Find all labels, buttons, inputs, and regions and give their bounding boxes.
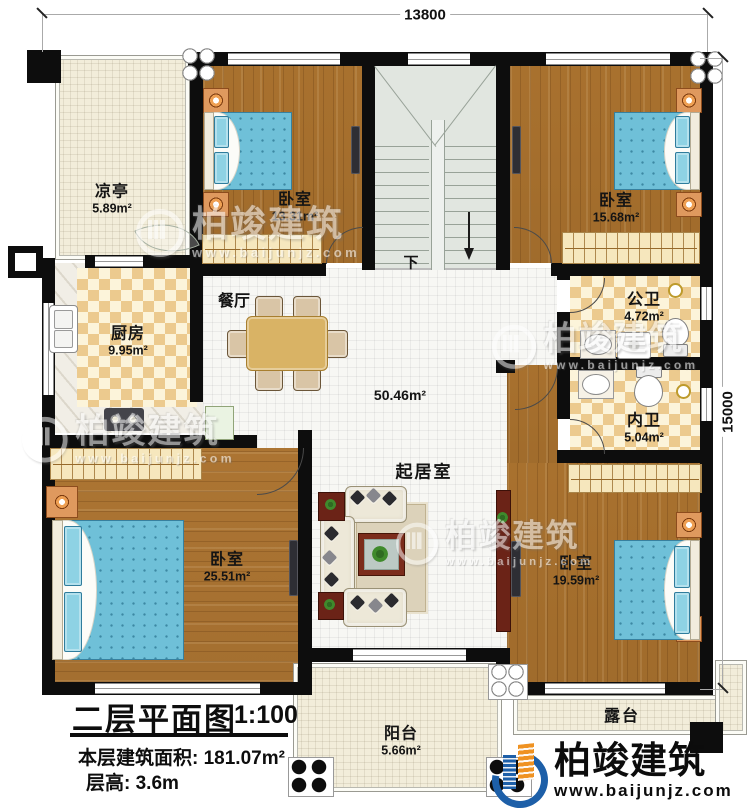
nightstand-lamp-icon [676,512,702,538]
wall-bedroom-tl-bottom [190,263,326,276]
wall-bedroom-bl-top-b [303,435,312,448]
plant-icon [324,599,335,610]
dimension-right-value: 15000 [720,387,737,437]
room-name: 厨房 [108,326,148,344]
headboard [52,520,63,660]
headboard [690,540,700,640]
bed-bedroom-bl [52,518,184,660]
dimension-ext [700,689,722,690]
pillow [214,116,229,148]
dimension-ext [707,14,708,52]
sink-basin [54,330,73,348]
shower-icon [668,283,683,298]
dimension-tick [702,7,713,18]
bed-bedroom-tl [204,110,292,190]
dimension-line-top [42,14,708,15]
stove-icon [104,408,144,431]
headboard [690,112,700,190]
window-stair [408,53,470,65]
room-label-private-bath: 内卫 5.04m² [624,413,664,446]
column-top-left [27,50,61,83]
room-label-pavilion: 凉亭 5.89m² [92,184,132,217]
column-circles-icon [489,663,526,698]
dining-chair [255,368,283,391]
living-area-value: 50.46m² [374,387,426,403]
public-bath-toilet-tank [663,344,688,357]
balcony-columns-icon [288,757,332,795]
logo-building-orange [518,743,534,781]
nightstand-lamp-icon [46,486,78,518]
room-area: 13.31m² [272,210,319,224]
wall-hall-stub [496,360,515,373]
plant-icon [372,546,388,562]
room-name: 内卫 [624,413,664,431]
stair-down-label: 下 [403,252,418,273]
room-area: 25.51m² [204,570,251,584]
pillow [674,592,690,634]
wall-kitchen-right [190,52,203,402]
plant-icon [325,499,336,510]
shower-icon [676,384,691,399]
public-bath-counter [617,332,651,359]
wall-stair-right [496,52,510,270]
wardrobe-bedroom-br [568,464,702,493]
room-area: 19.59m² [553,574,600,588]
room-label-public-bath: 公卫 4.72m² [624,292,664,325]
pillow [64,526,82,586]
room-label-dining: 餐厅 [218,287,250,311]
kitchen-sink-icon [49,305,78,353]
wall-right [700,52,713,695]
stair-down-arrow [464,248,474,260]
wardrobe-bedroom-tl [202,234,322,264]
room-name: 凉亭 [92,184,132,202]
nightstand-lamp-icon [676,192,702,217]
room-name: 阳台 [381,726,421,744]
plant-icon [497,512,508,523]
private-bath-sink-icon [578,370,614,399]
room-label-terrace: 露台 [604,702,640,726]
brand-website: www.baijunjz.com [554,781,733,801]
room-label-bedroom-br: 卧室 19.59m² [553,556,600,589]
window-bedroom-br [545,683,665,694]
room-area: 5.66m² [381,744,421,758]
dimension-ext [42,14,43,52]
room-name: 卧室 [272,192,319,210]
public-bath-sink-icon [580,330,616,359]
brand-logo: 柏竣建筑 www.baijunjz.com [492,742,733,801]
tv-icon [511,541,521,597]
dimension-top-value: 13800 [400,7,450,24]
floor-height-line: 层高: 3.6m [86,768,179,795]
window-private-bath [701,388,712,421]
title-underline [70,733,288,737]
stair-steps-left [375,146,429,270]
window-public-bath [701,287,712,320]
room-area: 5.04m² [624,431,664,445]
room-name: 卧室 [204,552,251,570]
dimension-line-right [722,58,723,690]
tv-icon [351,126,360,174]
planter-box [8,246,43,278]
headboard [204,112,214,190]
tv-icon [512,126,521,174]
room-label-bedroom-tr: 卧室 15.68m² [593,193,640,226]
room-label-balcony: 阳台 5.66m² [381,726,421,759]
room-area: 5.89m² [92,202,132,216]
wall-bedroom-bl-right [298,430,312,695]
room-area: 9.95m² [108,344,148,358]
public-bath-toilet-icon [662,318,689,347]
wardrobe-bedroom-bl [50,448,202,480]
nightstand-lamp-icon [203,192,229,217]
stair-arrow-line [468,212,470,248]
pillow [64,592,82,652]
room-name: 公卫 [624,292,664,310]
logo-building-blue [503,755,516,789]
balcony-sliding-door [353,649,466,661]
pavilion-opening [95,256,143,267]
floor-area-line: 本层建筑面积: 181.07m² [78,743,285,770]
room-label-kitchen: 厨房 9.95m² [108,326,148,359]
bed-bedroom-br [612,538,700,640]
flue-circles-icon [180,47,218,83]
brand-logo-icon [492,742,546,800]
room-name: 卧室 [553,556,600,574]
plan-scale: 1:100 [234,701,298,730]
room-area: 15.68m² [593,211,640,225]
bed-bedroom-tr [612,110,700,190]
pillow [675,152,690,184]
room-label-living: 起居室 [396,458,453,483]
fridge-icon [205,406,234,440]
pillow [675,116,690,148]
room-area: 4.72m² [624,310,664,324]
floor-plan: 下 [0,0,750,811]
wall-bath-left-a [557,276,570,280]
wardrobe-bedroom-tr [562,232,700,264]
wall-bedroom-tr-bottom [551,263,713,276]
sink-basin [54,310,73,329]
tv-icon [289,540,298,596]
room-label-bedroom-tl: 卧室 13.31m² [272,192,319,225]
private-bath-toilet-icon [634,375,663,407]
room-name: 卧室 [593,193,640,211]
pillow [214,152,229,184]
wall-stair-left [362,52,375,270]
dining-table [246,316,328,371]
brand-name: 柏竣建筑 [554,742,733,781]
window-bedroom-tl [228,53,340,65]
window-bedroom-tr [546,53,670,65]
dining-chair [293,368,321,391]
dining-chair [325,330,348,358]
room-label-bedroom-bl: 卧室 25.51m² [204,552,251,585]
dimension-ext [700,58,722,59]
pillow [674,546,690,588]
window-bedroom-bl [95,683,260,694]
